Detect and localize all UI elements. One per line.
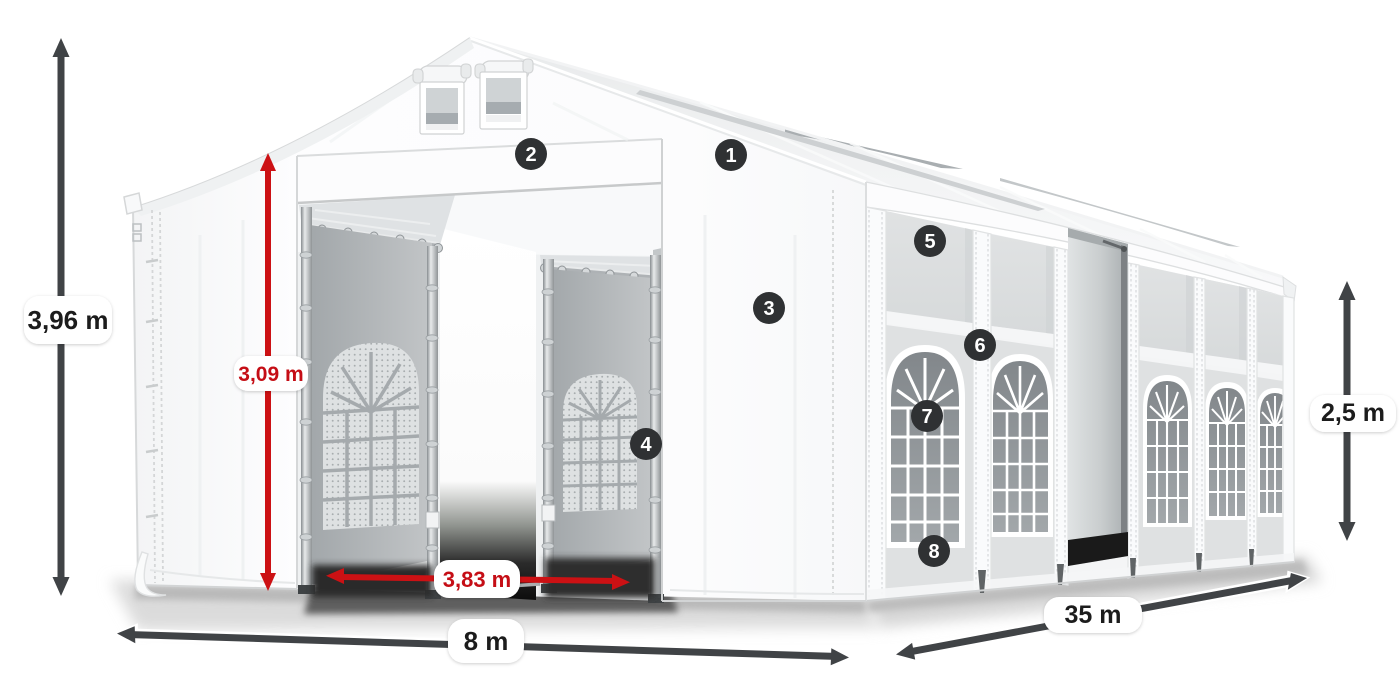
svg-text:3,09 m: 3,09 m: [238, 363, 303, 386]
svg-text:4: 4: [640, 434, 652, 456]
svg-text:8 m: 8 m: [464, 626, 509, 656]
svg-text:8: 8: [928, 541, 939, 563]
svg-text:6: 6: [974, 335, 985, 357]
svg-text:3: 3: [763, 298, 774, 320]
svg-text:3,96 m: 3,96 m: [28, 305, 109, 335]
svg-text:5: 5: [924, 231, 935, 253]
svg-text:2: 2: [525, 144, 536, 166]
svg-text:7: 7: [921, 406, 932, 428]
svg-text:2,5 m: 2,5 m: [1321, 399, 1385, 427]
svg-text:3,83 m: 3,83 m: [443, 567, 512, 592]
svg-text:1: 1: [725, 145, 736, 167]
svg-text:35 m: 35 m: [1065, 601, 1122, 629]
